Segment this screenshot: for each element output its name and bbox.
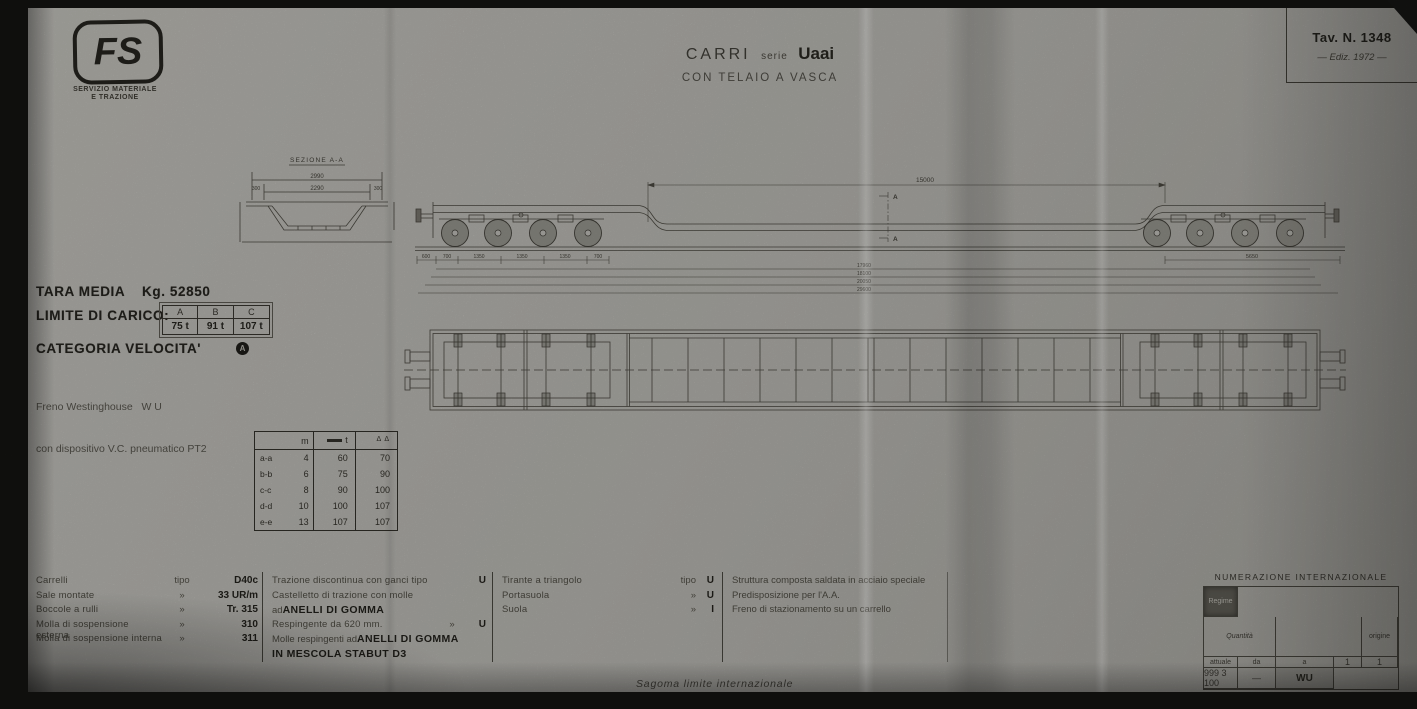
numbering-header-da: da — [1238, 657, 1276, 668]
traction-line6: IN MESCOLA STABUT D3 — [272, 648, 486, 663]
section-aa-drawing: SEZIONE A-A 2990 2290 300 300 — [232, 150, 402, 255]
sheet-title: CARRI serie Uaai CON TELAIO A VASCA — [590, 44, 930, 84]
tav-number: Tav. N. 1348 — [1294, 30, 1410, 45]
limit-header-c: C — [234, 306, 269, 319]
dim-18100: 18100 — [857, 271, 871, 277]
loading-row-ee: e-e 13 107 107 — [255, 514, 397, 530]
brake-note-line1: Freno Westinghouse W U — [36, 400, 207, 414]
traction-line2: Castelletto di trazione con molle — [272, 590, 486, 605]
load-limit-table: A B C 75 t 91 t 107 t — [162, 305, 270, 335]
dim-5650: 5650 — [1246, 254, 1258, 260]
dim-600: 600 — [422, 254, 431, 260]
brake-row-portasuola: Portasuola » U — [502, 590, 714, 605]
title-series-name: Uaai — [798, 44, 834, 63]
loading-row-aa: a-a 4 60 70 — [255, 450, 397, 466]
side-elevation-drawing: 15000 A A 600 700 1350 1350 1350 700 565… — [405, 158, 1350, 308]
part-row-molla-interna: Molla di sospensione interna » 311 — [36, 633, 258, 648]
dim-700a: 700 — [443, 254, 452, 260]
loading-row-bb: b-b 6 75 90 — [255, 466, 397, 482]
part-row-boccole: Boccole a rulli » Tr. 315 — [36, 604, 258, 619]
structure-line3: Freno di stazionamento su un carrello — [732, 604, 946, 619]
logo-subtitle-line2: E TRAZIONE — [56, 94, 174, 102]
numbering-table: Quantità Regime origine attuale da a 1 1… — [1203, 586, 1399, 690]
structure-column: Struttura composta saldata in acciaio sp… — [732, 575, 946, 619]
brake-note: Freno Westinghouse W U con dispositivo V… — [36, 372, 207, 484]
part-row-sale: Sale montate » 33 UR/m — [36, 590, 258, 605]
dim-20050: 20050 — [857, 279, 871, 285]
tav-plate: Tav. N. 1348 — Ediz. 1972 — — [1294, 30, 1410, 63]
limite-label: LIMITE DI CARICO: — [36, 308, 169, 323]
traction-column: Trazione discontinua con ganci tipo U Ca… — [272, 575, 486, 662]
brake-note-line2: con dispositivo V.C. pneumatico PT2 — [36, 442, 207, 456]
parts-column: Carrelli tipo D40c Sale montate » 33 UR/… — [36, 575, 258, 648]
limit-value-c: 107 t — [234, 319, 269, 334]
section-mark-bottom: A — [893, 236, 898, 243]
numbering-value-a: — — [1238, 668, 1276, 689]
structure-line2: Predisposizione per l'A.A. — [732, 590, 946, 605]
part-row-molla-esterna: Molla di sospensione esterna » 310 — [36, 619, 258, 634]
column-divider-4 — [947, 572, 948, 662]
tav-edition: — Ediz. 1972 — — [1294, 52, 1410, 63]
traction-line5: Molle respingenti ad ANELLI DI GOMMA — [272, 633, 486, 648]
dim-1350a: 1350 — [473, 254, 484, 260]
limit-value-b: 91 t — [198, 319, 233, 334]
numbering-header-origine: origine — [1362, 617, 1398, 657]
scanned-drawing-sheet: FS SERVIZIO MATERIALE E TRAZIONE CARRI s… — [0, 0, 1417, 709]
dim-17960: 17960 — [857, 263, 871, 269]
limit-value-a: 75 t — [163, 319, 198, 334]
limit-header-b: B — [198, 306, 233, 319]
column-divider-2 — [492, 572, 493, 662]
plan-view-drawing — [400, 310, 1350, 430]
numbering-header-blank — [1276, 617, 1362, 657]
brake-row-suola: Suola » I — [502, 604, 714, 619]
title-serie: serie — [761, 51, 788, 62]
part-row-carrelli: Carrelli tipo D40c — [36, 575, 258, 590]
section-title: SEZIONE A-A — [290, 157, 344, 164]
logo-subtitle: SERVIZIO MATERIALE E TRAZIONE — [56, 86, 174, 102]
dim-1350b: 1350 — [516, 254, 527, 260]
numbering-header-attuale: attuale — [1204, 657, 1238, 668]
numbering-header-regime: Regime — [1204, 587, 1238, 617]
traction-line1: Trazione discontinua con ganci tipo U — [272, 575, 486, 590]
traction-line3: ad ANELLI DI GOMMA — [272, 604, 486, 619]
dim-2990: 2990 — [310, 174, 324, 180]
numbering-value-attuale: 1 — [1362, 657, 1398, 668]
section-mark-top: A — [893, 194, 898, 201]
brake-column: Tirante a triangolo tipo U Portasuola » … — [502, 575, 714, 619]
fs-logo: FS — [72, 19, 163, 85]
tav-box-hline — [1286, 82, 1417, 83]
logo-subtitle-line1: SERVIZIO MATERIALE — [56, 86, 174, 94]
dim-300-left: 300 — [252, 186, 261, 192]
title-carri: CARRI — [686, 46, 751, 63]
dim-29600: 29600 — [857, 287, 871, 293]
dim-300-right: 300 — [374, 186, 383, 192]
numbering-header-a: a — [1276, 657, 1334, 668]
tara-value: Kg. 52850 — [142, 284, 210, 299]
numbering-value-da: 999 3 100 — [1204, 668, 1238, 689]
loading-table-header: m t Δ Δ — [255, 432, 397, 450]
loading-header-distributed: t — [313, 432, 355, 449]
speed-category-badge: A — [236, 342, 249, 355]
tav-box-vline — [1286, 8, 1287, 82]
fs-logo-text: FS — [93, 30, 142, 74]
gauge-note: Sagoma limite internazionale — [636, 678, 793, 690]
dim-2290: 2290 — [310, 186, 324, 192]
loading-header-concentrated: Δ Δ — [355, 432, 397, 449]
structure-line1: Struttura composta saldata in acciaio sp… — [732, 575, 946, 590]
title-subtitle: CON TELAIO A VASCA — [590, 72, 930, 84]
loading-row-cc: c-c 8 90 100 — [255, 482, 397, 498]
dim-1350c: 1350 — [559, 254, 570, 260]
dim-700b: 700 — [594, 254, 603, 260]
categoria-label: CATEGORIA VELOCITA' — [36, 341, 201, 356]
numbering-value-regime: WU — [1276, 668, 1334, 689]
traction-line4: Respingente da 620 mm. » U — [272, 619, 486, 634]
loading-header-m: m — [287, 436, 313, 446]
numbering-header-quantita: Quantità — [1204, 617, 1276, 657]
numbering-value-origine: 1 — [1334, 657, 1362, 668]
tara-label: TARA MEDIA — [36, 284, 125, 299]
loading-table: m t Δ Δ a-a 4 60 70 b-b 6 75 90 c-c 8 90… — [254, 431, 398, 531]
title-line1: CARRI serie Uaai — [590, 44, 930, 64]
loading-row-dd: d-d 10 100 107 — [255, 498, 397, 514]
brake-row-tirante: Tirante a triangolo tipo U — [502, 575, 714, 590]
numbering-title: NUMERAZIONE INTERNAZIONALE — [1203, 572, 1399, 582]
dim-15000: 15000 — [916, 177, 934, 184]
limit-header-a: A — [163, 306, 198, 319]
column-divider-1 — [262, 572, 263, 662]
distributed-load-icon — [327, 439, 342, 442]
column-divider-3 — [722, 572, 723, 662]
